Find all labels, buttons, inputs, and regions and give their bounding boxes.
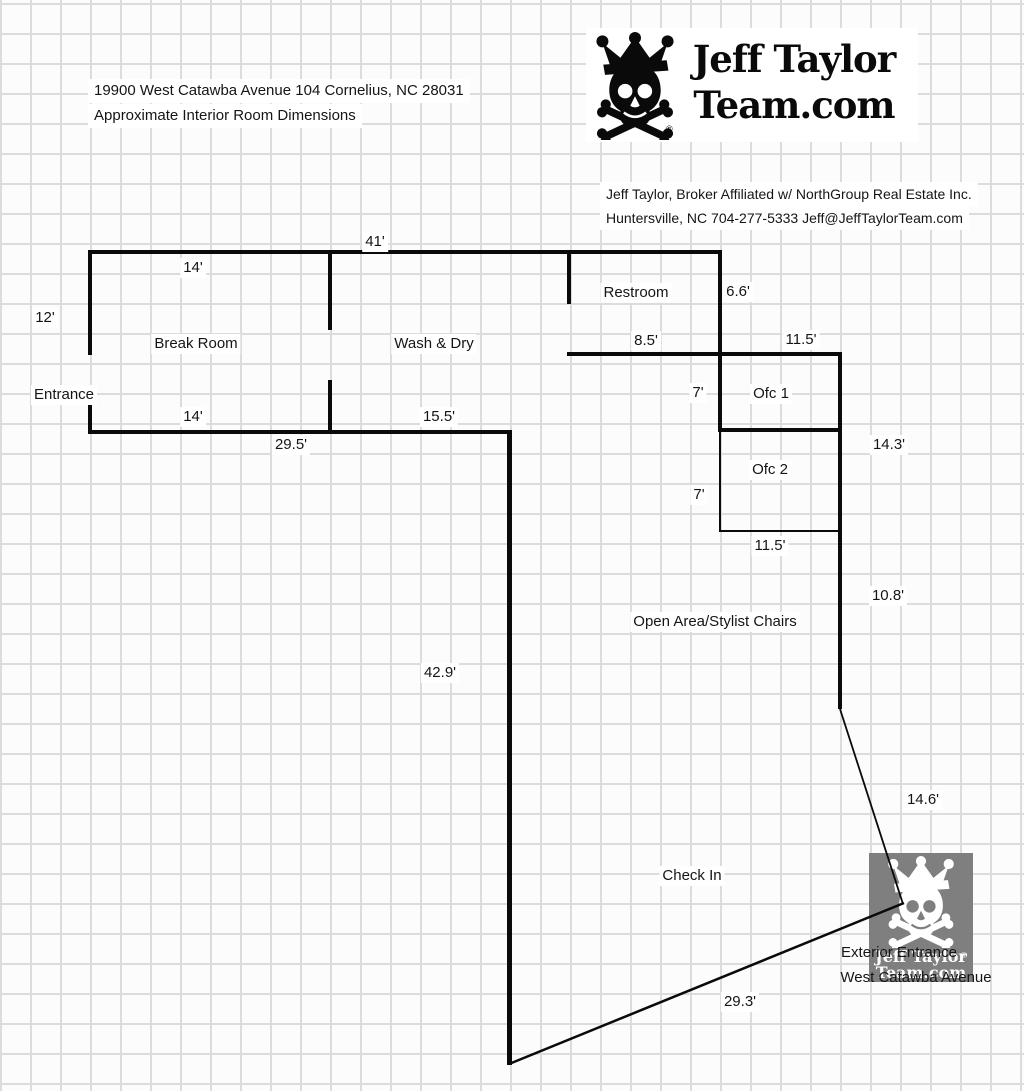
interior-entrance-label: Entrance [31, 385, 97, 405]
dim-right-lower-label: 10.8' [869, 586, 907, 606]
room-ofc2-label: Ofc 2 [749, 460, 791, 480]
dim-front-width-label: 29.5' [272, 435, 310, 455]
dim-left-height-label: 12' [32, 308, 58, 328]
registered-trademark-symbol: ® [666, 124, 673, 134]
exterior-entrance-label-line1: Exterior Entrance [838, 943, 960, 963]
wall-restroom-bottom [567, 352, 842, 356]
watermark-registered-symbol: ® [961, 951, 967, 960]
logo-wordmark-line2: Team.com [678, 82, 910, 128]
room-break-room-label: Break Room [151, 334, 240, 354]
dim-ofc1-width-label: 11.5' [783, 330, 820, 350]
wall-office-left [718, 250, 722, 432]
wall-ofc2-bottom-thin [720, 530, 838, 532]
property-address: 19900 West Catawba Avenue 104 Cornelius,… [88, 79, 470, 103]
jeff-taylor-team-logo: ® Jeff Taylor Team.com [586, 28, 918, 142]
dim-washdry-bottom-label: 15.5' [420, 407, 458, 427]
wall-ofc2-left-thin [719, 432, 721, 532]
wall-breakroom-divider-upper [328, 250, 332, 330]
wall-left-upper [88, 250, 92, 355]
skull-crossbones-crown-icon-white [884, 856, 958, 948]
broker-contact-line: Huntersville, NC 704-277-5333 Jeff@JeffT… [600, 206, 969, 230]
dim-restroom-width-label: 8.5' [631, 331, 661, 351]
wall-right [838, 352, 842, 709]
wall-top [88, 250, 722, 254]
dim-right-upper-label: 14.3' [870, 435, 908, 455]
dim-breakroom-bottom-label: 14' [180, 407, 206, 427]
dim-left-wall-label: 42.9' [421, 663, 459, 683]
room-check-in-label: Check In [659, 866, 724, 886]
wall-front-bottom [88, 430, 512, 434]
room-ofc1-label: Ofc 1 [750, 384, 792, 404]
broker-affiliation-line: Jeff Taylor, Broker Affiliated w/ NorthG… [600, 182, 978, 206]
wall-ofc1-ofc2-divider [718, 428, 842, 432]
wall-long-left [507, 430, 512, 1065]
dim-front-diagonal-label: 29.3' [721, 992, 759, 1012]
dim-top-width-label: 41' [362, 232, 388, 252]
dim-ofc2-height-label: 7' [690, 485, 707, 505]
dim-restroom-height-label: 6.6' [723, 282, 753, 302]
wall-restroom-left [567, 250, 571, 304]
plan-subtitle: Approximate Interior Room Dimensions [88, 104, 362, 128]
dim-breakroom-top-label: 14' [180, 258, 206, 278]
logo-wordmark-line1: Jeff Taylor [678, 36, 910, 82]
logo-wordmark: Jeff Taylor Team.com [678, 36, 910, 128]
room-open-area-label: Open Area/Stylist Chairs [630, 612, 799, 632]
dim-ofc1-height-label: 7' [689, 383, 706, 403]
floor-plan-page: 19900 West Catawba Avenue 104 Cornelius,… [0, 0, 1024, 1091]
wall-breakroom-divider-lower [328, 380, 332, 434]
room-wash-dry-label: Wash & Dry [391, 334, 476, 354]
room-restroom-label: Restroom [600, 283, 671, 303]
dim-ofc2-width-label: 11.5' [752, 536, 789, 556]
exterior-entrance-label-line2: West Catawba Avenue [837, 968, 994, 988]
dim-entry-diagonal-label: 14.6' [904, 790, 942, 810]
